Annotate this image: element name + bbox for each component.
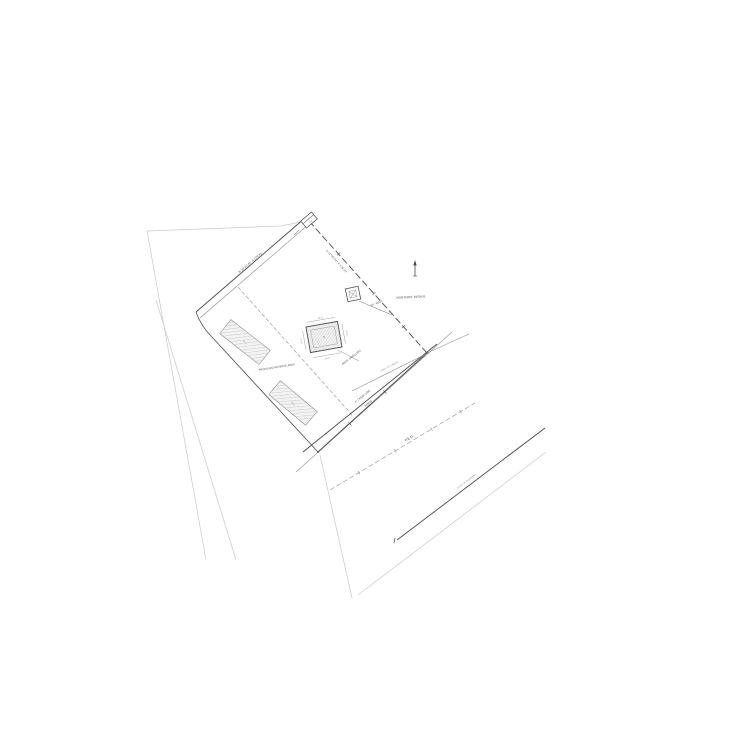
ped-label: P.E.D. bbox=[404, 434, 415, 443]
adjacent-road-line-top bbox=[147, 226, 281, 231]
well-symbol bbox=[345, 286, 360, 301]
monument-tick bbox=[294, 230, 299, 235]
road-centerline bbox=[397, 428, 545, 540]
dim-left-label: 24.0' bbox=[300, 337, 304, 344]
road-centerline-end-tick bbox=[394, 538, 395, 543]
dim-line-right bbox=[342, 324, 345, 344]
dwelling-label: PROP. DWELLING bbox=[341, 349, 362, 366]
street-label: MONTEREY AVENUE bbox=[396, 294, 425, 300]
nw-bearing-label: N 58°22'40" E 209.95' bbox=[237, 251, 263, 274]
gravel-edge-label: EDGE OF GRAVEL bbox=[380, 360, 400, 372]
reserve-area-label: PROPOSED RESERVE AREA bbox=[259, 362, 296, 372]
leachfield-1: TP-1 bbox=[220, 320, 270, 365]
site-plan-sheet: EDGE OF PAVEMENT P.E.D. N 58°22'40" E 20… bbox=[0, 0, 752, 750]
adjacent-road-line-left2 bbox=[156, 300, 236, 560]
boundary-sw-line bbox=[196, 312, 318, 452]
road-group: EDGE OF PAVEMENT P.E.D. bbox=[330, 403, 545, 543]
boundary-nw-inner-line bbox=[200, 224, 309, 318]
annotations: MONTEREY AVENUE bbox=[396, 260, 425, 300]
north-arrow-head bbox=[413, 260, 416, 266]
dim-line-left bbox=[303, 331, 306, 351]
well-label: EX. WELL bbox=[370, 299, 384, 308]
building-footprint: 26.0' 26.0' 24.0' 24.0' bbox=[297, 312, 353, 364]
monument-symbol: CM bbox=[301, 212, 318, 228]
corner-continuation-line bbox=[320, 455, 352, 598]
fence-line bbox=[303, 344, 437, 452]
adjacent-lines bbox=[147, 222, 546, 598]
dim-right-label: 24.0' bbox=[345, 330, 349, 337]
adjacent-road-line-left1 bbox=[147, 231, 206, 560]
corner-point-s bbox=[317, 451, 319, 453]
north-arrow-icon bbox=[413, 260, 417, 276]
ped-tick-3 bbox=[431, 427, 433, 430]
boundary-nw-line bbox=[196, 218, 305, 312]
monument-box bbox=[301, 212, 318, 228]
parcel-interior: TP-1 TP-2 PROPOSED RESERVE AREA 26.0' 26… bbox=[220, 286, 437, 452]
ped-ticked-line bbox=[330, 403, 475, 490]
east-corner-extension-line bbox=[427, 334, 469, 353]
road-faint-line bbox=[358, 452, 546, 595]
ped-tick-4 bbox=[460, 410, 462, 413]
site-plan-svg: EDGE OF PAVEMENT P.E.D. N 58°22'40" E 20… bbox=[0, 0, 752, 750]
leachfield-2: TP-2 bbox=[269, 381, 317, 426]
dim-bottom-label: 26.0' bbox=[325, 357, 332, 361]
